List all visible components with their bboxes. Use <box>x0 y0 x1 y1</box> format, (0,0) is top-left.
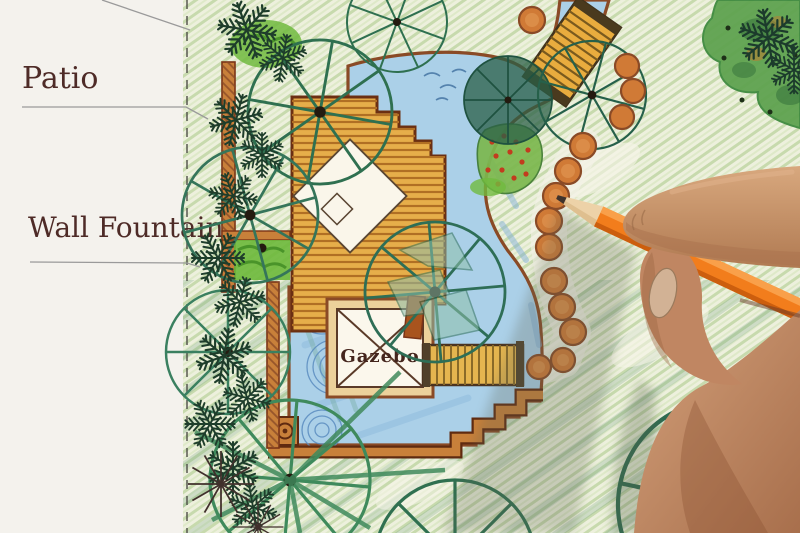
wall-fountain-label: Wall Fountain <box>28 211 224 244</box>
photo-of-landscape-plan: Patio Wall Fountain <box>0 0 800 533</box>
patio-label: Patio <box>22 61 98 96</box>
plan-artwork: Patio Wall Fountain <box>0 0 800 533</box>
